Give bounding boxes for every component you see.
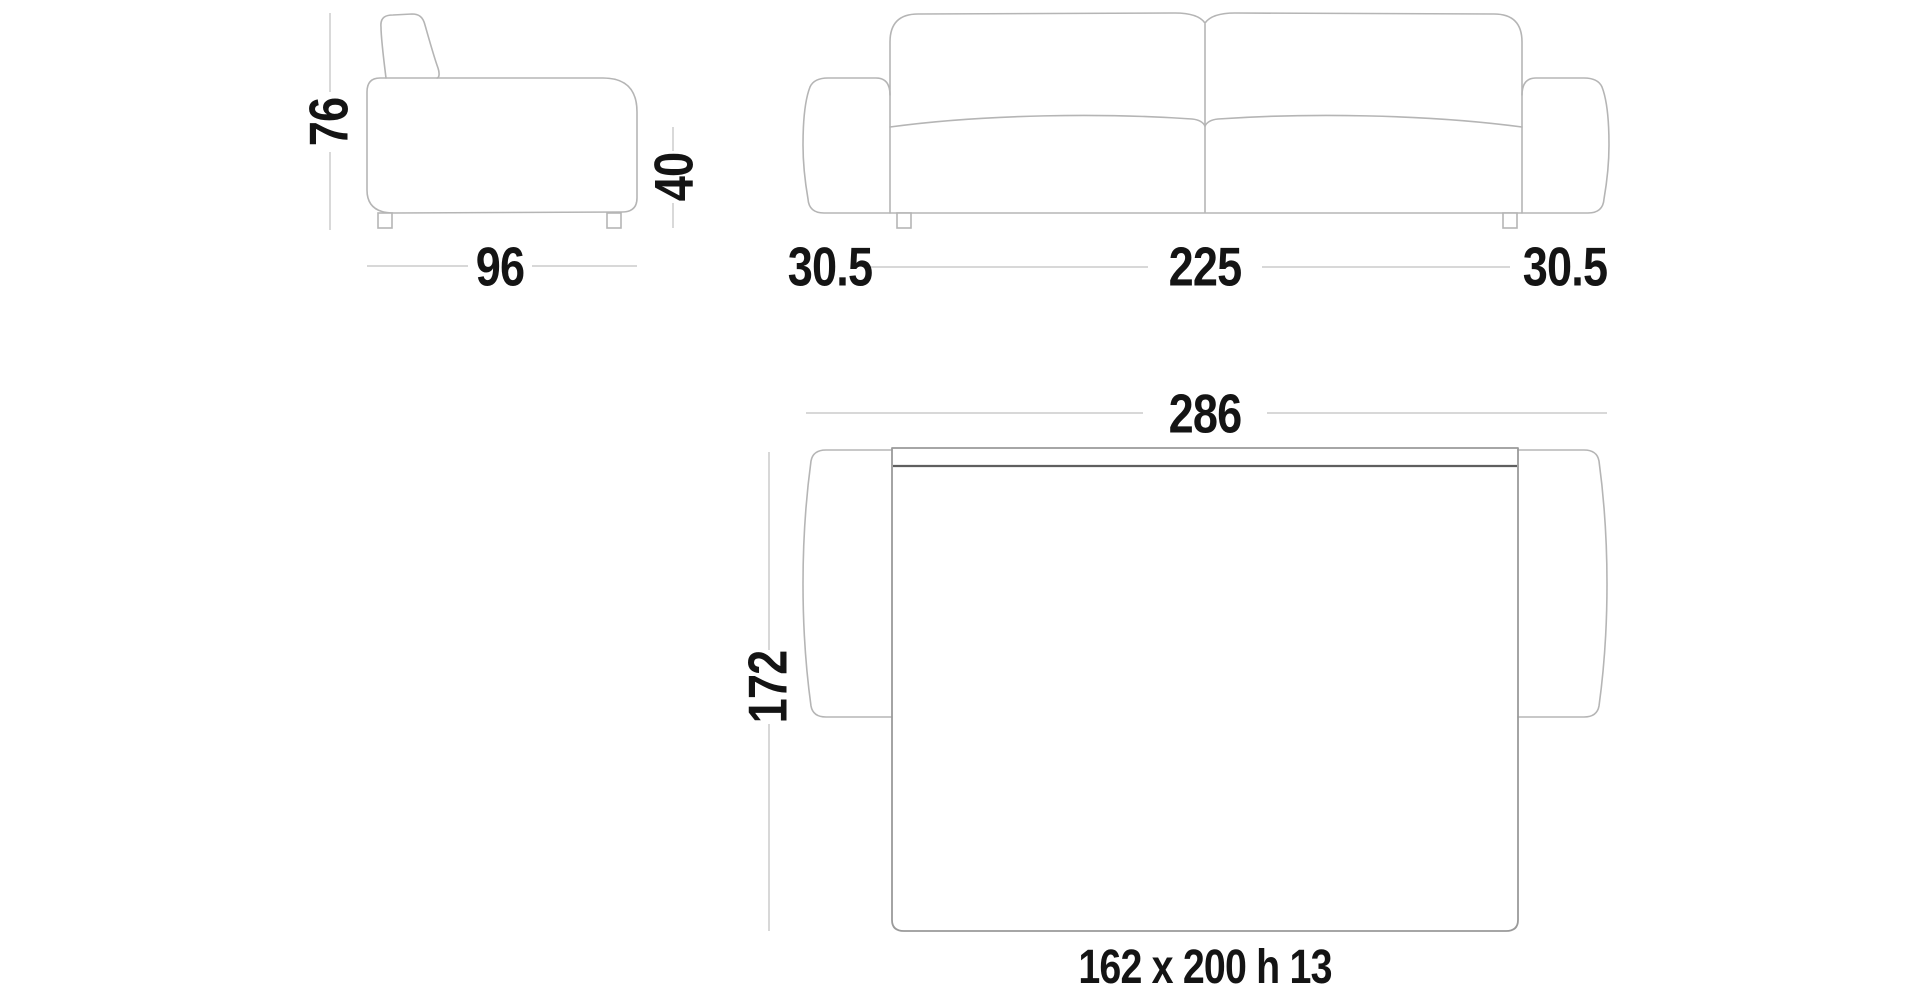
side-depth-dim-label: 96 xyxy=(476,240,525,295)
plan-arm-left-outline xyxy=(803,450,892,717)
side-body-outline xyxy=(367,78,637,213)
front-seat-seam-right xyxy=(1205,115,1522,127)
plan-bed-outline xyxy=(892,448,1518,931)
plan-view-drawing xyxy=(803,448,1607,931)
plan-total-width-dim-label: 286 xyxy=(1169,387,1242,442)
sofa-dimension-diagram: 76 40 96 30.5 225 30.5 286 172 162 x 200… xyxy=(0,0,1920,1000)
side-leg-left xyxy=(378,213,392,228)
front-seat-seam-left xyxy=(890,115,1205,127)
front-seat-width-dim-label: 225 xyxy=(1169,240,1242,295)
mattress-size-label: 162 x 200 h 13 xyxy=(1078,944,1331,992)
side-height-dim-label: 76 xyxy=(302,98,357,147)
front-arm-left-outline xyxy=(803,78,890,213)
technical-drawing xyxy=(0,0,1920,1000)
front-leg-right xyxy=(1503,213,1517,228)
front-leg-left xyxy=(897,213,911,228)
side-leg-right xyxy=(607,213,621,228)
front-arm-right-dim-label: 30.5 xyxy=(1523,240,1607,295)
side-backrest-outline xyxy=(381,14,439,78)
front-arm-right-outline xyxy=(1522,78,1609,213)
plan-view-dimension-lines xyxy=(769,413,1607,931)
front-arm-left-dim-label: 30.5 xyxy=(788,240,872,295)
front-view-drawing xyxy=(803,13,1609,228)
plan-arm-right-outline xyxy=(1518,450,1607,717)
front-backrest-outline xyxy=(890,13,1522,213)
side-view-drawing xyxy=(367,14,637,228)
side-seat-height-dim-label: 40 xyxy=(647,153,702,202)
plan-total-depth-dim-label: 172 xyxy=(741,651,796,724)
